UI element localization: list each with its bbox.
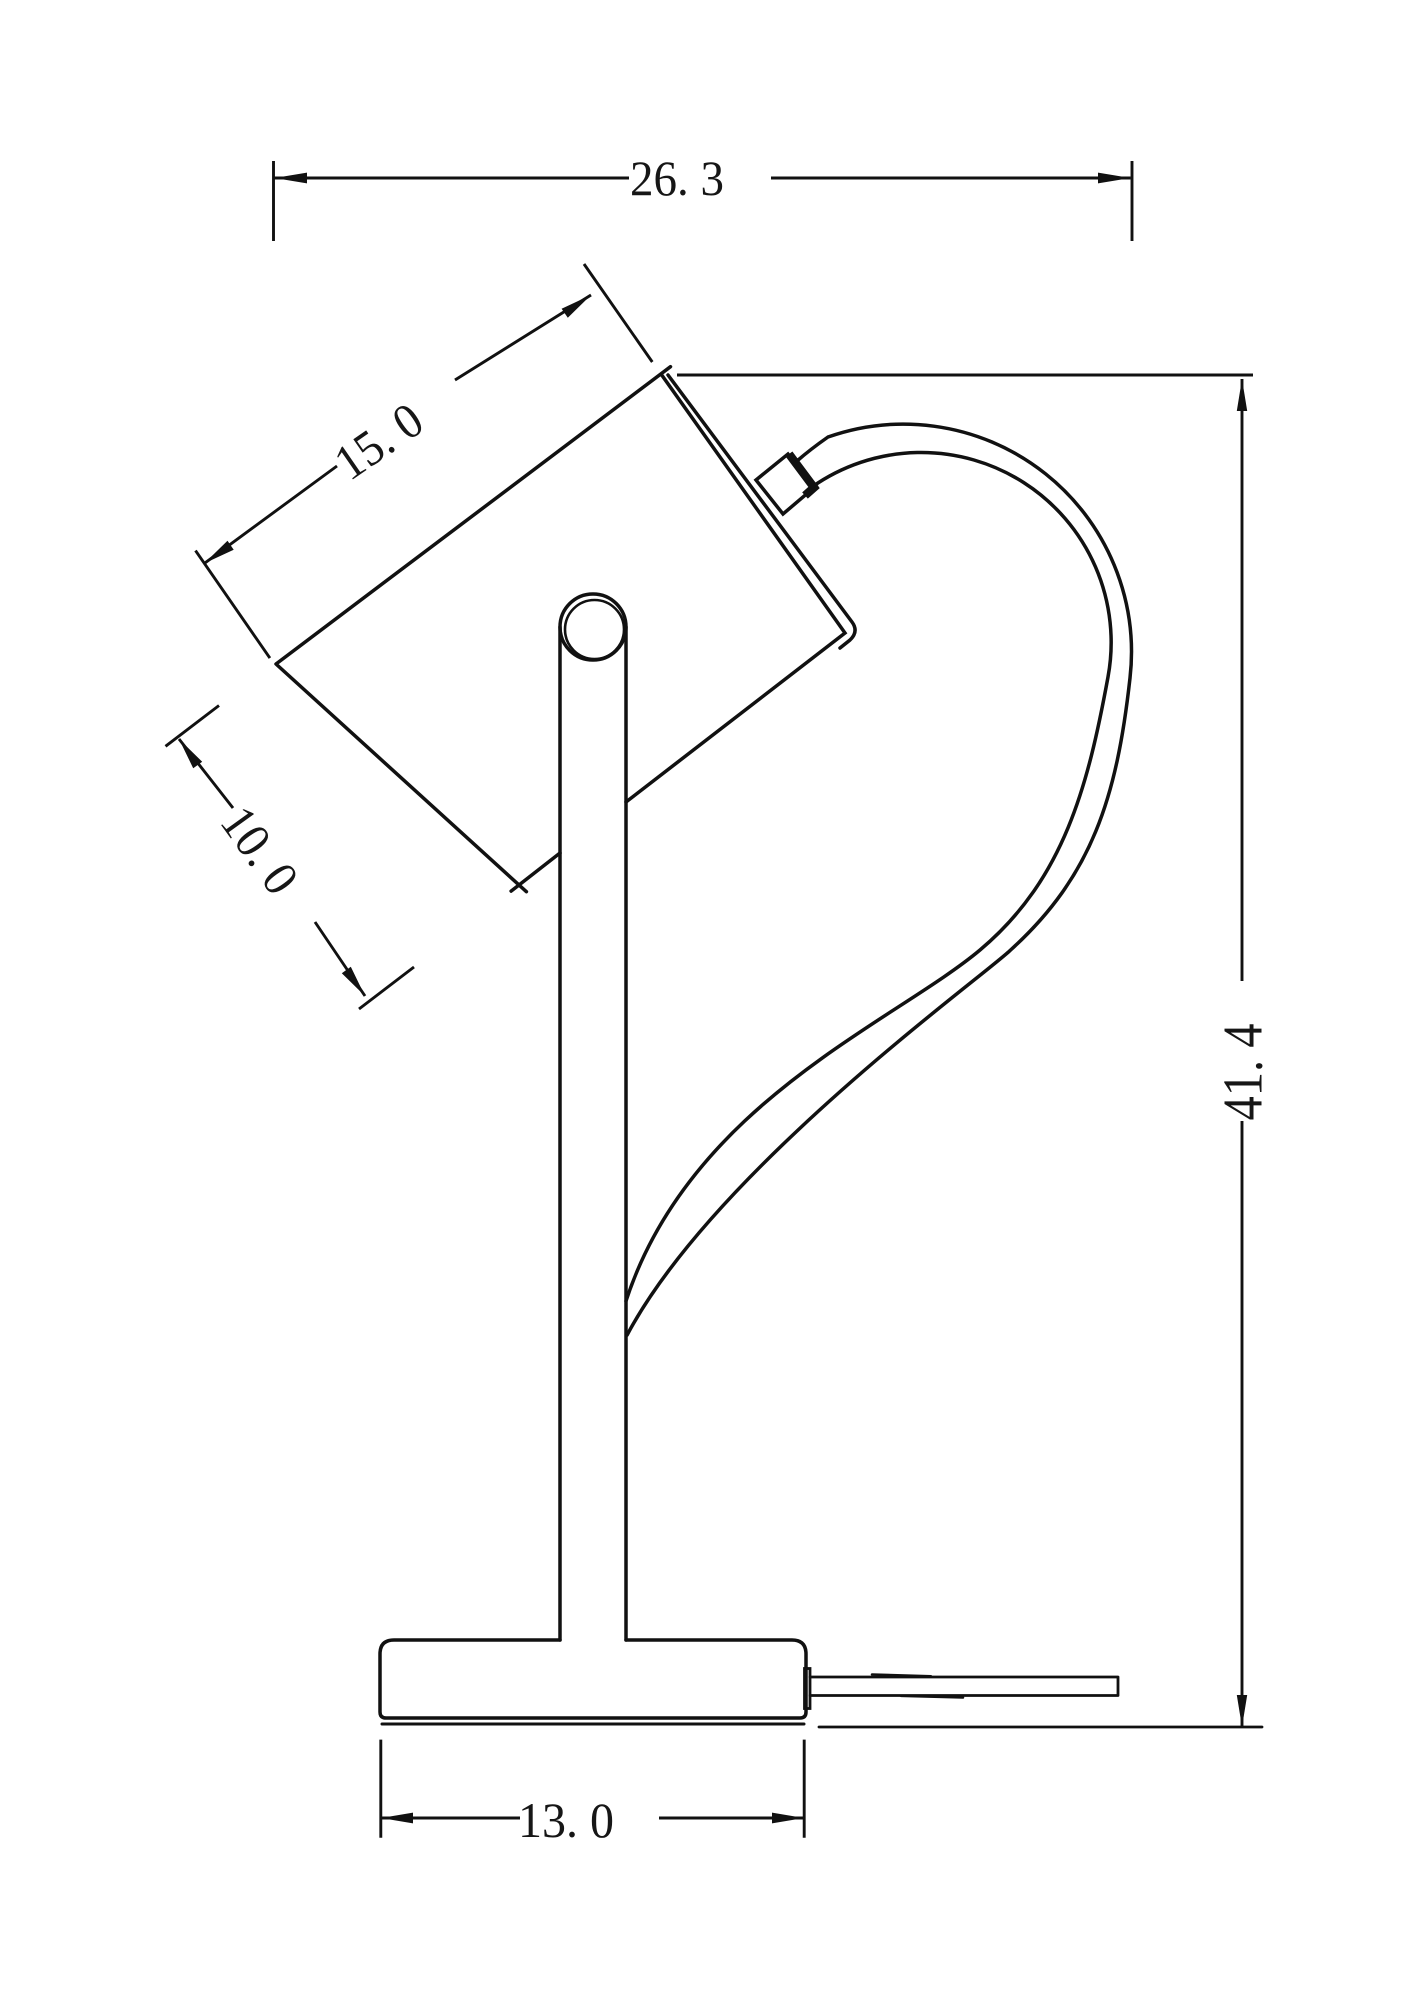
svg-text:41. 4: 41. 4 [1213, 1024, 1275, 1121]
svg-text:13. 0: 13. 0 [518, 1792, 614, 1848]
svg-text:26. 3: 26. 3 [630, 150, 724, 206]
